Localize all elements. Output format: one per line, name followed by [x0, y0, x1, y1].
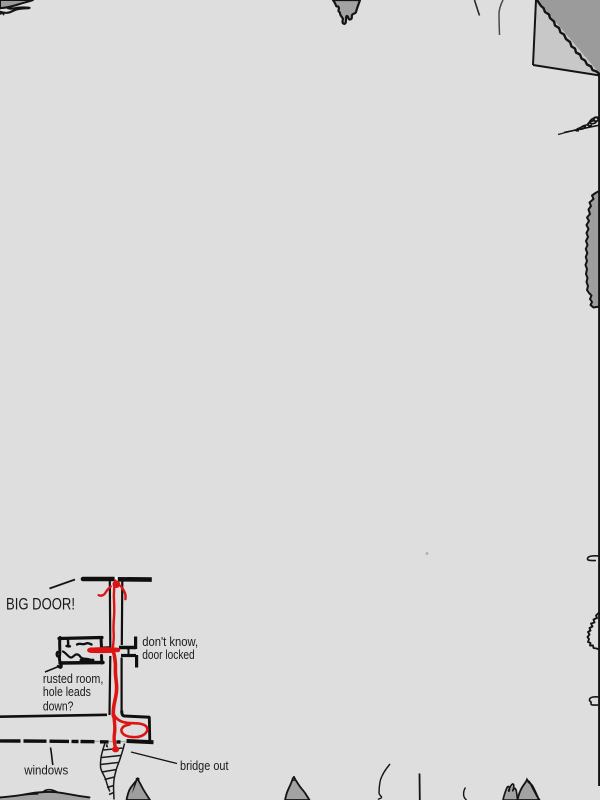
svg-text:hole leads: hole leads: [43, 685, 91, 699]
svg-text:door locked: door locked: [142, 648, 195, 662]
svg-text:bridge out: bridge out: [180, 759, 229, 773]
svg-text:windows: windows: [23, 764, 68, 778]
svg-text:down?: down?: [43, 699, 74, 713]
svg-text:BIG DOOR!: BIG DOOR!: [6, 596, 75, 614]
svg-text:rusted room,: rusted room,: [43, 672, 104, 686]
